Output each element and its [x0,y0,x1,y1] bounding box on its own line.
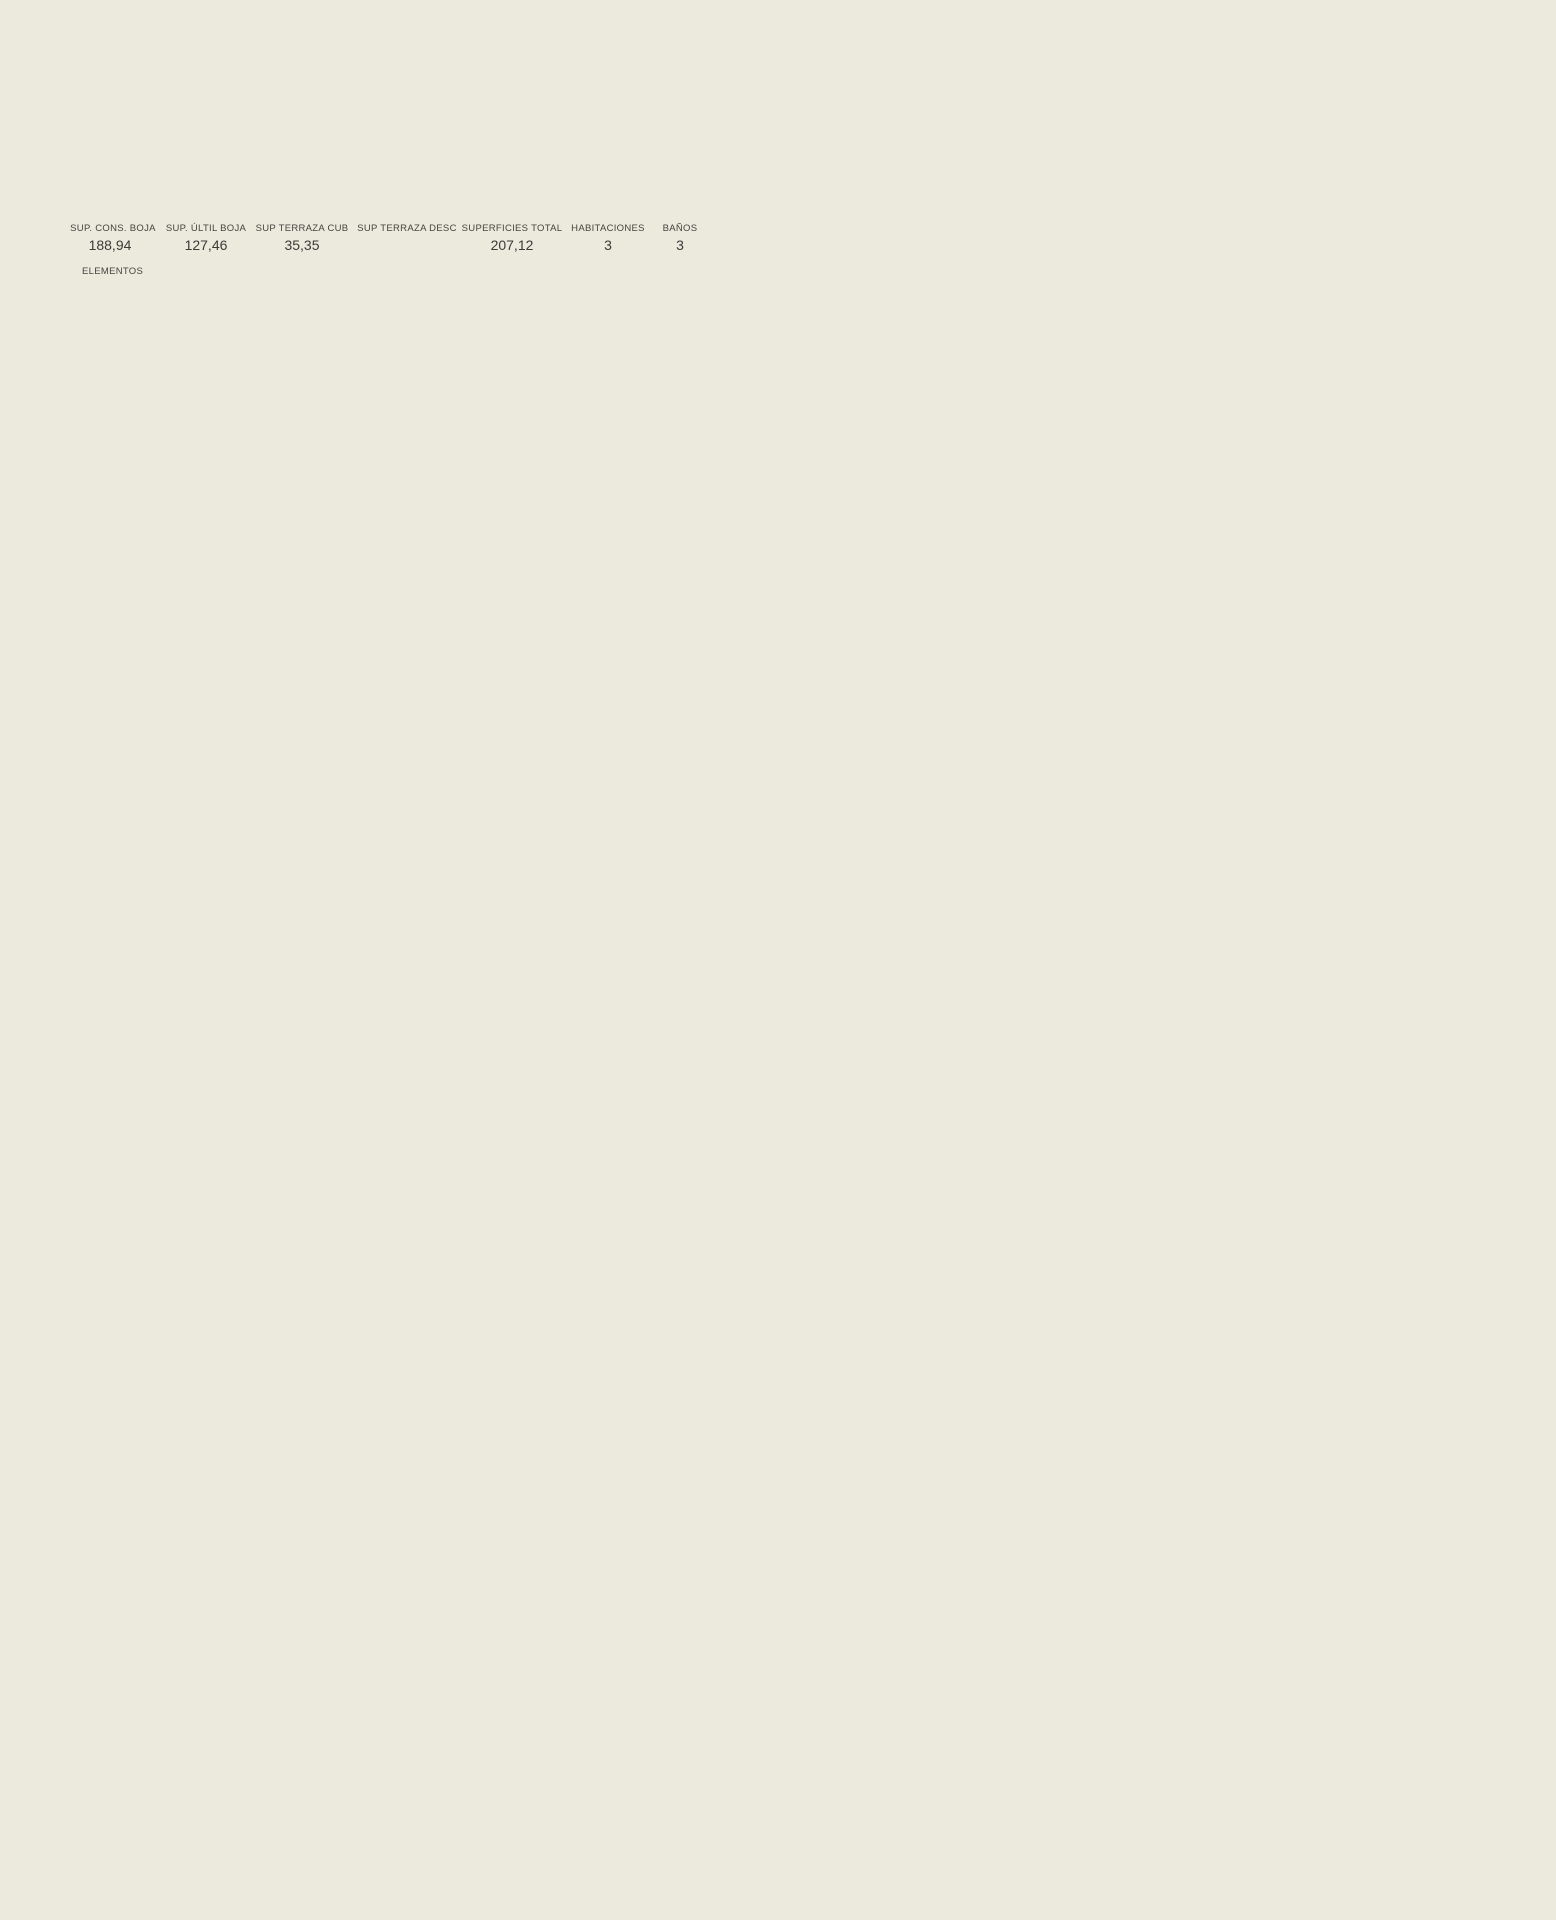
svg-text:207,12: 207,12 [491,237,534,253]
svg-text:SUP TERRAZA DESC: SUP TERRAZA DESC [357,223,456,234]
svg-text:ELEMENTOS: ELEMENTOS [82,266,143,277]
svg-text:3: 3 [604,237,612,253]
svg-text:HABITACIONES: HABITACIONES [571,223,645,234]
svg-text:SUP TERRAZA CUB: SUP TERRAZA CUB [256,223,349,234]
svg-text:SUP. ÚLTIL BOJA: SUP. ÚLTIL BOJA [166,223,247,234]
svg-text:SUP. CONS. BOJA: SUP. CONS. BOJA [70,223,156,234]
svg-text:SUPERFICIES TOTAL: SUPERFICIES TOTAL [462,223,563,234]
svg-text:3: 3 [676,237,684,253]
svg-text:BAÑOS: BAÑOS [663,223,698,234]
svg-text:35,35: 35,35 [284,237,319,253]
svg-text:127,46: 127,46 [185,237,228,253]
svg-text:188,94: 188,94 [89,237,132,253]
